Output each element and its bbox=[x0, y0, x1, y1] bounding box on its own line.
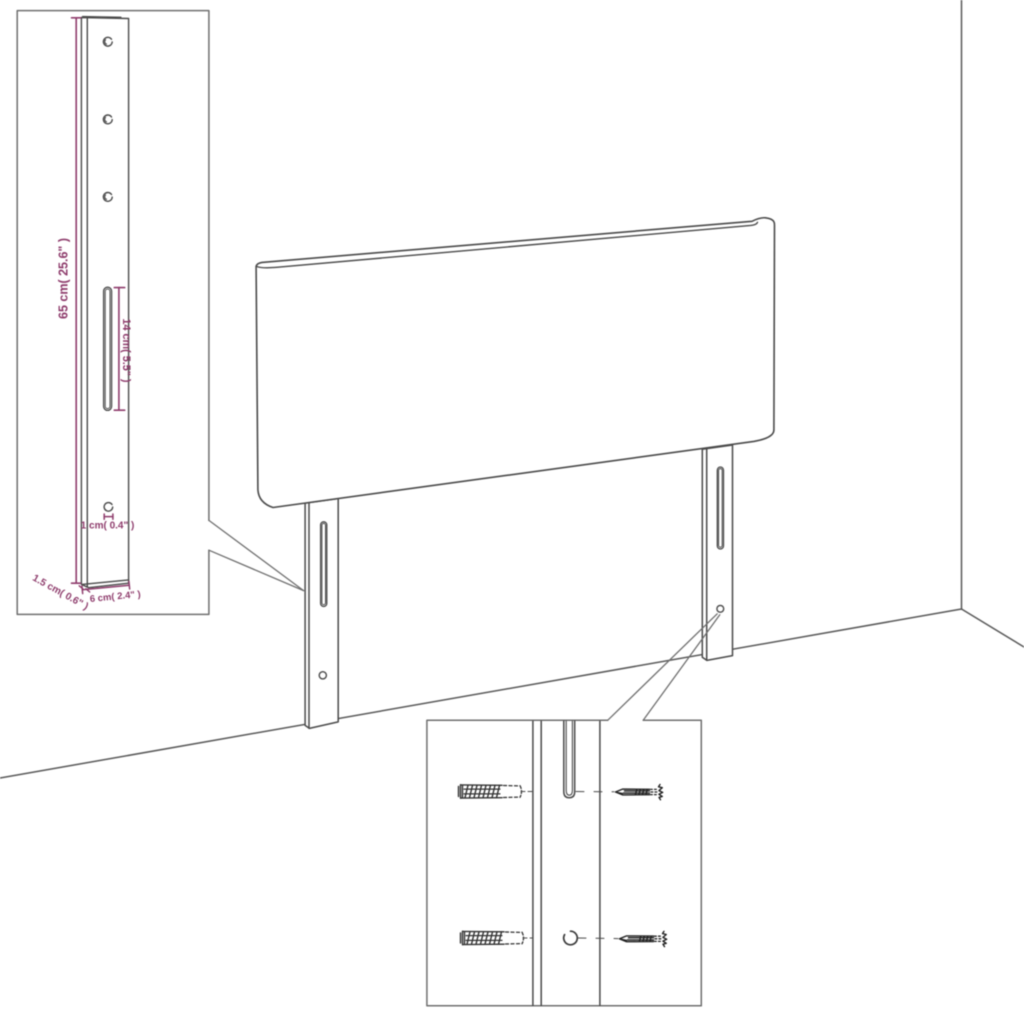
svg-text:1 cm( 0.4" ): 1 cm( 0.4" ) bbox=[81, 521, 135, 532]
svg-text:65 cm( 25.6" ): 65 cm( 25.6" ) bbox=[57, 238, 71, 319]
svg-text:6 cm( 2.4" ): 6 cm( 2.4" ) bbox=[89, 589, 141, 605]
svg-text:14 cm( 5.5" ): 14 cm( 5.5" ) bbox=[120, 319, 132, 383]
